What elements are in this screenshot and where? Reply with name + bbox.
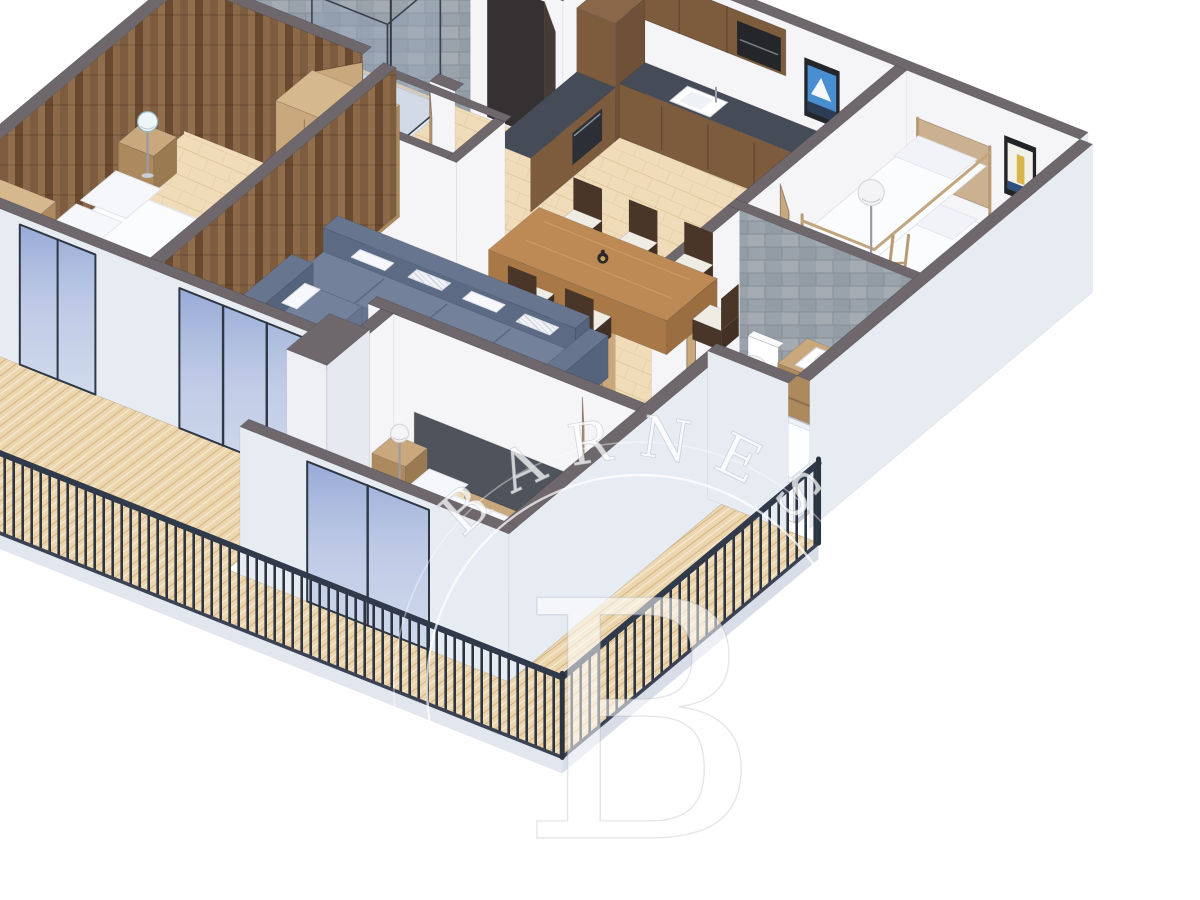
floor-plan-svg: BARNES B bbox=[0, 0, 1200, 900]
floor-plan-image: BARNES B bbox=[0, 0, 1200, 900]
watermark-monogram: B bbox=[519, 532, 762, 900]
master-balcony-door bbox=[20, 225, 96, 395]
